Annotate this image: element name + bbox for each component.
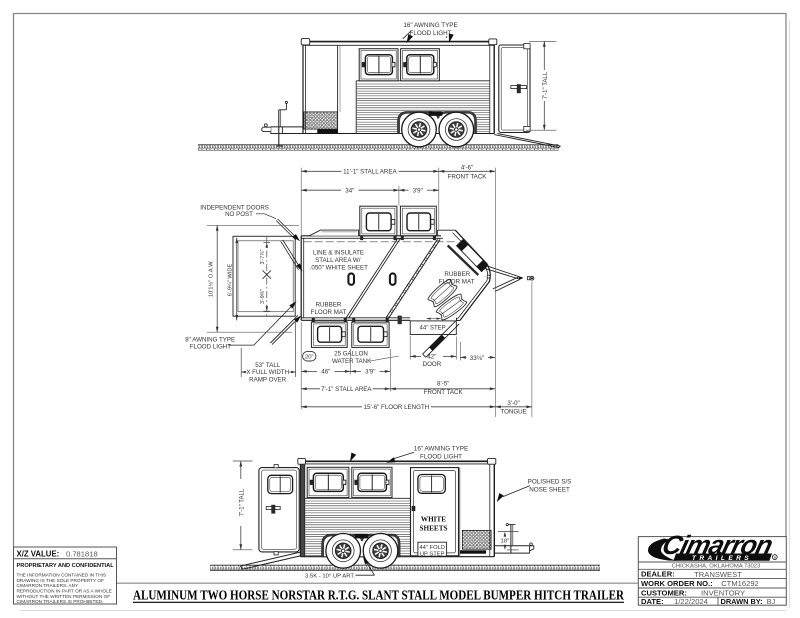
svg-text:DEALER:: DEALER: <box>641 570 675 579</box>
svg-text:CHICKASHA, OKLAHOMA 73023: CHICKASHA, OKLAHOMA 73023 <box>672 564 761 570</box>
svg-text:FLOOR MAT: FLOOR MAT <box>311 309 347 316</box>
svg-text:CIMARRON TRAILERS IS PROHIBITE: CIMARRON TRAILERS IS PROHIBITED. <box>17 599 104 604</box>
svg-text:46": 46" <box>321 369 330 376</box>
svg-text:STALL AREA W/: STALL AREA W/ <box>315 257 361 264</box>
svg-text:DOOR: DOOR <box>423 361 442 368</box>
svg-text:TONGUE: TONGUE <box>500 409 526 416</box>
svg-text:42": 42" <box>427 354 436 361</box>
svg-text:0.781818: 0.781818 <box>66 549 98 558</box>
svg-text:7'-1" TALL: 7'-1" TALL <box>239 488 245 516</box>
svg-text:TRAILERS: TRAILERS <box>692 555 752 562</box>
svg-text:SHEETS: SHEETS <box>420 525 448 533</box>
svg-text:NOSE SHEET: NOSE SHEET <box>529 486 570 493</box>
svg-text:7'-1" STALL AREA: 7'-1" STALL AREA <box>321 386 372 393</box>
svg-text:DRAWING IS THE SOLE PROPERTY O: DRAWING IS THE SOLE PROPERTY OF <box>17 578 104 583</box>
svg-text:6'-9¼" WIDE: 6'-9¼" WIDE <box>227 264 233 297</box>
svg-text:RUBBER: RUBBER <box>444 271 470 278</box>
svg-text:3.5K - 10° UP ART.: 3.5K - 10° UP ART. <box>305 574 355 580</box>
svg-text:25 GALLON: 25 GALLON <box>334 350 368 357</box>
svg-text:33⅛": 33⅛" <box>470 355 484 362</box>
svg-text:8'-5": 8'-5" <box>437 380 449 387</box>
svg-text:44" STEP: 44" STEP <box>420 326 446 332</box>
svg-text:FLOOD LIGHT: FLOOD LIGHT <box>420 453 462 460</box>
svg-text:FRONT TACK: FRONT TACK <box>448 174 488 181</box>
svg-text:3'-9⅜": 3'-9⅜" <box>260 289 266 304</box>
svg-text:1/22/2024: 1/22/2024 <box>674 597 708 606</box>
svg-text:WATER TANK: WATER TANK <box>332 358 372 365</box>
svg-text:53" TALL: 53" TALL <box>255 362 281 369</box>
svg-text:11'-1" STALL AREA: 11'-1" STALL AREA <box>343 169 397 176</box>
svg-text:REPRODUCTION IN PART OR AS A W: REPRODUCTION IN PART OR AS A WHOLE <box>17 589 112 594</box>
svg-text:UP STEP: UP STEP <box>420 551 445 557</box>
svg-text:.050" WHITE SHEET: .050" WHITE SHEET <box>310 264 368 271</box>
svg-text:X/Z VALUE:: X/Z VALUE: <box>17 549 60 558</box>
svg-text:16" AWNING TYPE: 16" AWNING TYPE <box>403 22 457 29</box>
svg-text:POLISHED S/S: POLISHED S/S <box>528 478 572 485</box>
svg-text:RUBBER: RUBBER <box>316 301 342 308</box>
svg-text:TRANSWEST: TRANSWEST <box>694 570 742 579</box>
svg-text:34": 34" <box>345 187 354 194</box>
svg-text:44" FOLD: 44" FOLD <box>419 545 445 551</box>
svg-text:4'-6": 4'-6" <box>461 164 473 171</box>
svg-text:DATE:: DATE: <box>641 597 664 606</box>
svg-text:DRAWN BY:: DRAWN BY: <box>721 597 763 606</box>
svg-text:15'-6" FLOOR LENGTH: 15'-6" FLOOR LENGTH <box>364 404 430 411</box>
svg-text:FLOOR MAT: FLOOR MAT <box>439 279 475 286</box>
svg-text:WITHOUT THE WRITTEN PERMISSION: WITHOUT THE WRITTEN PERMISSION OF <box>17 594 111 599</box>
svg-text:3'-0": 3'-0" <box>507 400 519 407</box>
svg-text:WORK ORDER NO.:: WORK ORDER NO.: <box>641 579 713 588</box>
svg-text:FLOOD LIGHT: FLOOD LIGHT <box>410 30 452 37</box>
svg-text:10'1½" O.A.W.: 10'1½" O.A.W. <box>207 260 214 297</box>
svg-text:THE INFORMATION CONTAINED IN T: THE INFORMATION CONTAINED IN THIS <box>17 573 107 578</box>
svg-text:3'9": 3'9" <box>413 187 423 194</box>
svg-text:X FULL WIDTH: X FULL WIDTH <box>246 369 289 376</box>
svg-text:CIMARRON TRAILERS. ANY: CIMARRON TRAILERS. ANY <box>17 583 80 588</box>
svg-text:FRONT TACK: FRONT TACK <box>424 389 464 396</box>
svg-text:ALUMINUM TWO HORSE NORSTAR R.T: ALUMINUM TWO HORSE NORSTAR R.T.G. SLANT … <box>133 588 624 603</box>
svg-text:RAMP OVER: RAMP OVER <box>249 377 287 384</box>
svg-text:PROPRIETARY AND CONFIDENTIAL: PROPRIETARY AND CONFIDENTIAL <box>17 563 115 569</box>
svg-text:BJ: BJ <box>767 597 776 606</box>
svg-text:NO POST: NO POST <box>225 211 253 218</box>
svg-text:18": 18" <box>501 539 510 545</box>
svg-text:3'9": 3'9" <box>365 369 375 376</box>
svg-text:20": 20" <box>305 354 314 360</box>
svg-text:FLOOD LIGHT: FLOOD LIGHT <box>190 343 231 350</box>
svg-text:LINE & INSULATE: LINE & INSULATE <box>313 249 364 256</box>
svg-text:WHITE: WHITE <box>421 516 446 524</box>
svg-text:16" AWNING TYPE: 16" AWNING TYPE <box>414 445 468 452</box>
svg-text:7'-1" TALL: 7'-1" TALL <box>543 71 549 99</box>
svg-text:3'-7⅞": 3'-7⅞" <box>260 249 266 264</box>
svg-text:CTM16292: CTM16292 <box>721 579 759 588</box>
